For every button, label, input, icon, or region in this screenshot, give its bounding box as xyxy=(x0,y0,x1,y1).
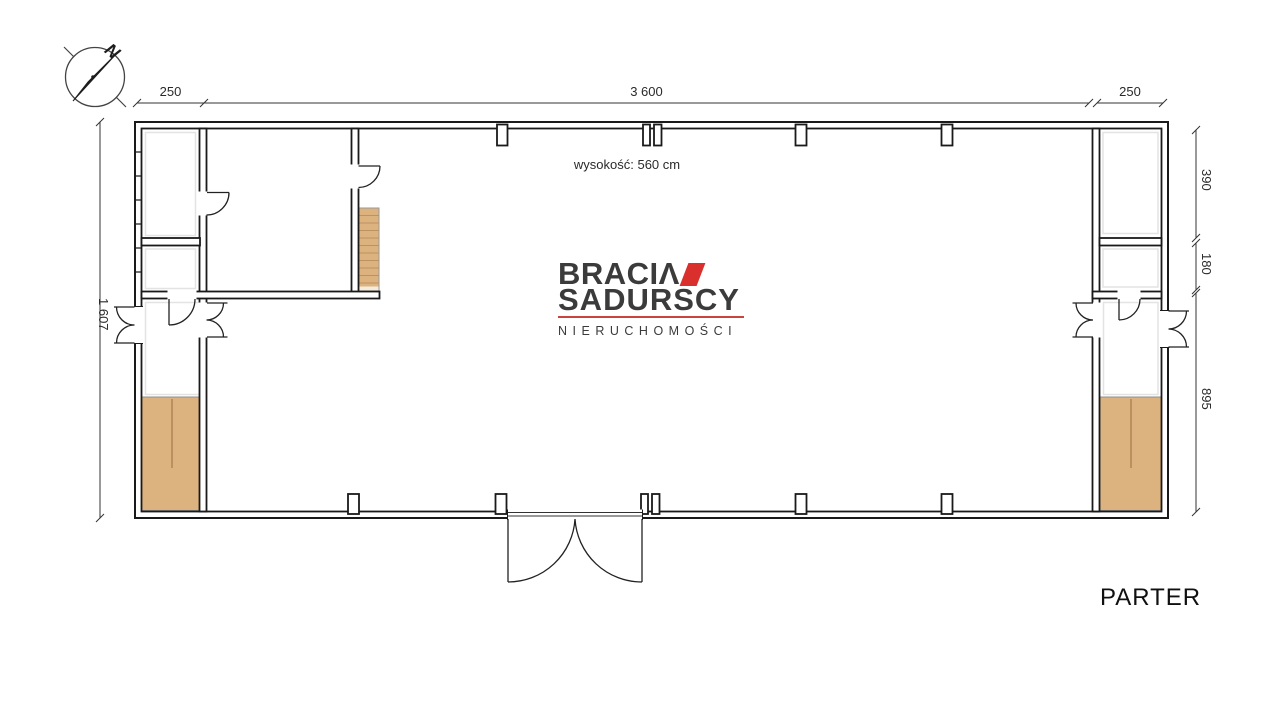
dim-right-middle: 180 xyxy=(1199,253,1214,275)
main-entrance-double-door xyxy=(508,519,642,582)
staircase xyxy=(359,208,380,291)
dim-top-left: 250 xyxy=(137,84,204,99)
brand-word-3: NIERUCHOMOŚCI xyxy=(558,324,758,338)
dim-top-span: 3 600 xyxy=(204,84,1089,99)
door-front-room-west xyxy=(207,193,230,216)
dim-right-top: 390 xyxy=(1199,169,1214,191)
stair-landing-strip xyxy=(359,287,379,291)
wall-openings xyxy=(134,165,1170,521)
floor-plan-drawing: N xyxy=(0,0,1280,720)
floor-plan-page: N 250 3 600 250 1 607 390 180 895 wysoko… xyxy=(0,0,1280,720)
double-door-right-exterior xyxy=(1169,311,1190,347)
double-door-left-exterior xyxy=(114,307,135,343)
entrance-opening xyxy=(508,510,643,521)
wall-left-divider xyxy=(142,238,201,246)
compass-icon: N xyxy=(64,39,126,107)
double-door-left-hall xyxy=(207,303,228,337)
doors xyxy=(114,166,1189,582)
brand-word-2: SADURSCY xyxy=(558,287,758,313)
floor-name-label: PARTER xyxy=(1100,584,1201,612)
wall-front-room xyxy=(352,129,359,293)
ceiling-height-note: wysokość: 560 cm xyxy=(547,157,707,172)
dim-left-height: 1 607 xyxy=(96,298,111,331)
wall-right-divider xyxy=(1100,238,1162,246)
brand-logo: BRACIΛ SADURSCY NIERUCHOMOŚCI xyxy=(558,261,758,338)
dim-top-right: 250 xyxy=(1097,84,1163,99)
double-door-right-hall xyxy=(1073,303,1094,337)
door-front-room-east xyxy=(359,166,381,188)
dim-right-bottom: 895 xyxy=(1199,388,1214,410)
compass-north-label: N xyxy=(101,39,125,63)
